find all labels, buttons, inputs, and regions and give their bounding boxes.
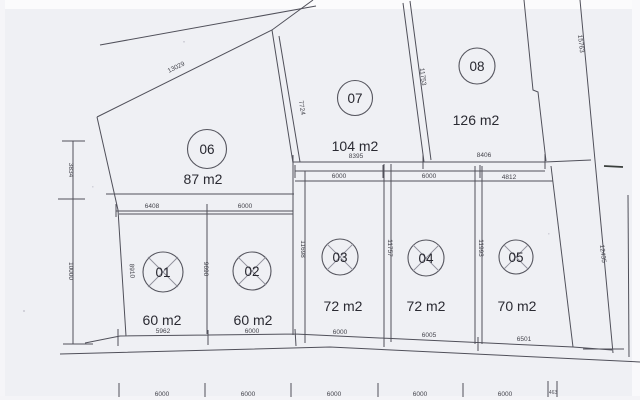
dim-plot07-width: 8395 xyxy=(349,153,364,160)
plot-03-area: 72 m2 xyxy=(324,298,363,314)
plot-05-number: 05 xyxy=(508,250,523,265)
paper-left-strip xyxy=(0,0,5,400)
dim-plot02-bottom: 6000 xyxy=(245,328,260,335)
dim-plot04-05-divider: 11993 xyxy=(477,239,484,257)
plot-07-number: 07 xyxy=(347,91,362,106)
plot-04-number: 04 xyxy=(418,251,434,266)
dim-plot01-02-divider: 9690 xyxy=(202,262,209,277)
dim-plot02-top: 6000 xyxy=(238,203,253,210)
dim-plot04-bottom: 6005 xyxy=(422,332,437,339)
dim-plot08-width: 8406 xyxy=(477,152,492,159)
plot-07-area: 104 m2 xyxy=(332,138,379,154)
dim-plot05-bottom: 6501 xyxy=(517,336,532,343)
plot-06-number: 06 xyxy=(199,142,214,157)
paper-top-strip xyxy=(0,0,640,9)
dim-plot01-bottom: 5962 xyxy=(156,328,171,335)
site-plan-svg: 01 60 m2 02 60 m2 03 72 m2 04 72 m2 05 7… xyxy=(0,0,640,400)
dim-plot04-top: 6000 xyxy=(422,173,437,180)
dim-plot03-04-divider: 11757 xyxy=(386,239,393,257)
plot-01-area: 60 m2 xyxy=(143,312,182,328)
plot-02-number: 02 xyxy=(244,264,259,279)
dim-west-lower: 10000 xyxy=(67,262,74,280)
paper xyxy=(0,0,640,400)
dim-plot03-top: 6000 xyxy=(332,173,347,180)
scale-label-5: 6000 xyxy=(498,391,513,398)
east-dark-dash xyxy=(604,166,623,167)
plot-03-number: 03 xyxy=(332,250,347,265)
plot-04-area: 72 m2 xyxy=(407,298,446,314)
plot-08-number: 08 xyxy=(469,59,484,74)
dim-plot05-top: 4812 xyxy=(502,174,517,181)
plot-06-area: 87 m2 xyxy=(184,171,223,187)
dim-west-upper: 3834 xyxy=(67,163,74,178)
dim-plot01-west: 8910 xyxy=(128,264,136,279)
plot-08-area: 126 m2 xyxy=(453,112,500,128)
dim-plot03-bottom: 6000 xyxy=(333,329,348,336)
scanned-plot-plan: 01 60 m2 02 60 m2 03 72 m2 04 72 m2 05 7… xyxy=(0,0,640,400)
dim-plot02-03-divider: 11698 xyxy=(299,240,306,258)
scale-label-1: 6000 xyxy=(155,391,170,398)
plot-05-area: 70 m2 xyxy=(498,298,537,314)
paper-right-strip xyxy=(632,0,640,400)
plot-01-number: 01 xyxy=(155,265,170,280)
scale-label-6: 463 xyxy=(549,390,558,396)
dim-plot01-top: 6408 xyxy=(145,203,160,210)
scan-background xyxy=(0,0,640,400)
scale-label-4: 6000 xyxy=(413,391,428,398)
scale-label-2: 6000 xyxy=(241,391,256,398)
scale-label-3: 6000 xyxy=(327,391,342,398)
paper-bottom-strip xyxy=(0,396,640,400)
plot-02-area: 60 m2 xyxy=(234,312,273,328)
